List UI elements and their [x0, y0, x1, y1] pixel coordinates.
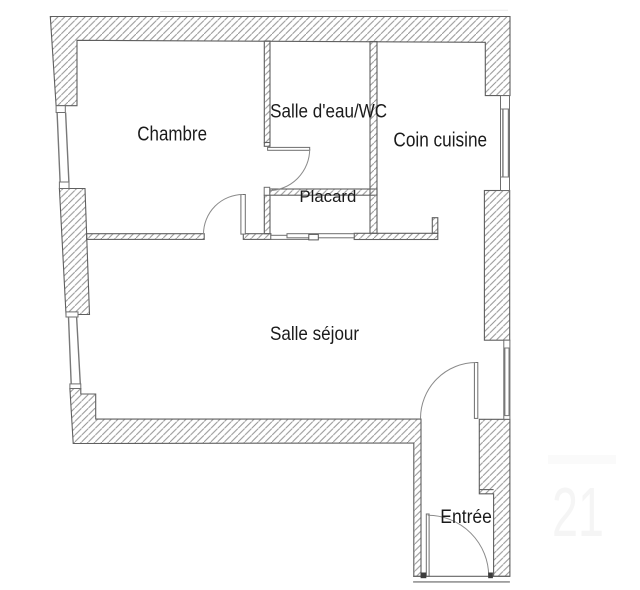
svg-text:Placard: Placard [299, 188, 356, 206]
svg-text:Chambre: Chambre [137, 124, 207, 146]
svg-text:Coin cuisine: Coin cuisine [393, 130, 487, 152]
svg-text:Entrée: Entrée [440, 506, 492, 528]
svg-text:21: 21 [552, 473, 604, 551]
svg-text:Salle d'eau/WC: Salle d'eau/WC [270, 101, 387, 122]
svg-text:Salle séjour: Salle séjour [270, 323, 360, 345]
